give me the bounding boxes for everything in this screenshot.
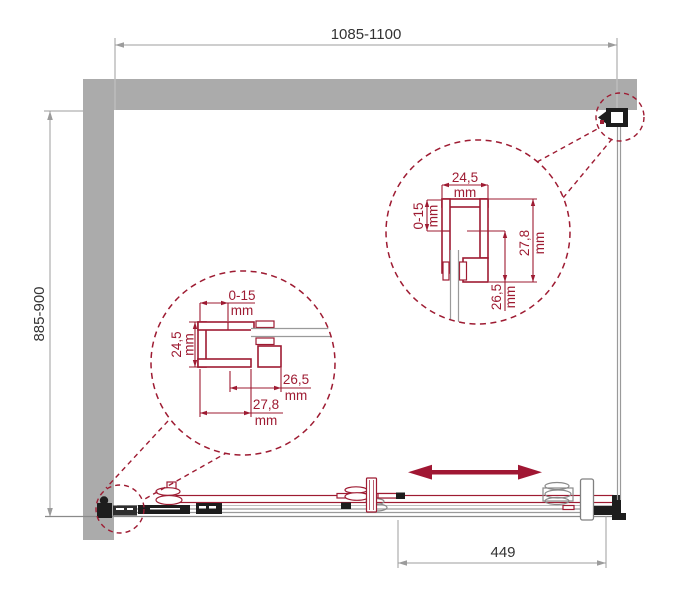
detail-right-top-value: 24,5 — [452, 170, 478, 185]
dimension-travel: 449 — [398, 516, 606, 568]
travel-dimension-label: 449 — [490, 544, 515, 561]
detail-view-right: 24,5 mm 0-15 mm 26,5 mm — [386, 140, 570, 324]
detail-left-top-unit: mm — [231, 303, 254, 318]
detail-right-top-unit: mm — [454, 185, 477, 200]
top-wall — [83, 79, 637, 110]
width-dimension-label: 1085-1100 — [331, 26, 402, 43]
slide-direction-arrow-icon — [408, 465, 542, 480]
detail-left-inner-value: 26,5 — [283, 372, 309, 387]
detail-right-overall-value: 27,8 — [517, 230, 532, 256]
detail-right-overall-unit: mm — [532, 232, 547, 255]
detail-right-inner-unit: mm — [503, 286, 518, 309]
detail-left-side-unit: mm — [182, 333, 197, 356]
detail-left-overall-value: 27,8 — [253, 397, 279, 412]
depth-dimension-label: 885-900 — [31, 286, 48, 341]
detail-right-side-value: 0-15 — [411, 202, 426, 229]
detail-right-side-unit: mm — [426, 205, 441, 228]
detail-left-top-value: 0-15 — [228, 288, 255, 303]
detail-left-inner-unit: mm — [285, 388, 308, 403]
dimension-depth: 885-900 — [31, 111, 83, 517]
detail-view-left: 0-15 mm 24,5 mm 26,5 mm — [151, 271, 336, 455]
detail-left-overall-unit: mm — [255, 413, 278, 428]
walls — [83, 79, 637, 540]
fixed-glass-panel — [598, 108, 628, 500]
detail-right-inner-value: 26,5 — [489, 284, 504, 310]
roller-wheel — [156, 488, 180, 496]
door-stile — [367, 478, 377, 512]
fixed-panel-stile — [581, 479, 594, 520]
left-wall — [83, 79, 114, 540]
shower-enclosure-plan-drawing: 1085-1100 885-900 — [0, 0, 692, 600]
roller-carriage-middle — [337, 478, 405, 512]
drawing-canvas: 1085-1100 885-900 — [0, 0, 692, 600]
